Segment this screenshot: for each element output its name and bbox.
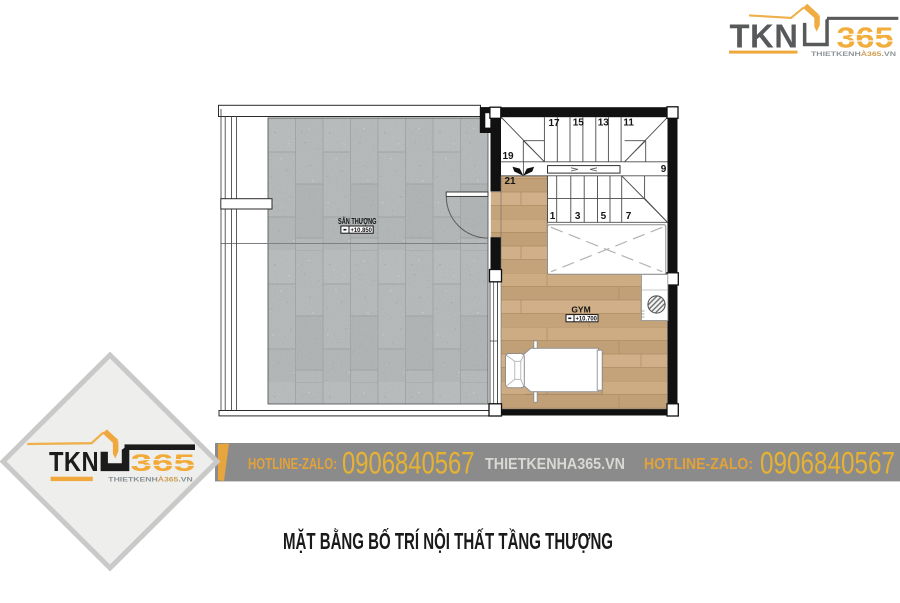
svg-text:GYM: GYM: [571, 305, 590, 315]
svg-text:365: 365: [837, 23, 894, 55]
svg-text:0906840567: 0906840567: [342, 445, 475, 481]
svg-text:5: 5: [601, 211, 607, 222]
svg-text:+10.700: +10.700: [575, 317, 597, 323]
svg-text:13: 13: [598, 118, 610, 129]
svg-text:365: 365: [131, 450, 196, 477]
svg-text:21: 21: [504, 176, 516, 187]
svg-text:TKN: TKN: [730, 18, 799, 55]
svg-text:THIETKENHÀ365.VN: THIETKENHÀ365.VN: [811, 49, 896, 58]
svg-text:HOTLINE-ZALO:: HOTLINE-ZALO:: [644, 456, 753, 473]
svg-text:1: 1: [550, 211, 556, 222]
svg-text:9: 9: [661, 164, 667, 175]
svg-text:SÂN THƯỢNG: SÂN THƯỢNG: [338, 215, 377, 226]
svg-text:TKN: TKN: [49, 446, 99, 477]
svg-text:MẶT BẰNG BỐ TRÍ NỘI THẤT TẦNG: MẶT BẰNG BỐ TRÍ NỘI THẤT TẦNG THƯỢNG: [283, 527, 613, 554]
svg-text:+10.850: +10.850: [350, 228, 372, 234]
svg-text:19: 19: [502, 151, 514, 162]
svg-text:THIETKENHA365.VN: THIETKENHA365.VN: [485, 456, 625, 473]
svg-text:17: 17: [548, 118, 560, 129]
svg-text:THIETKENHÀ365.VN: THIETKENHÀ365.VN: [108, 477, 193, 484]
svg-text:7: 7: [626, 211, 632, 222]
svg-text:15: 15: [573, 118, 585, 129]
svg-text:0906840567: 0906840567: [760, 445, 895, 481]
svg-text:11: 11: [623, 118, 634, 129]
svg-text:HOTLINE-ZALO:: HOTLINE-ZALO:: [248, 456, 337, 473]
svg-text:3: 3: [575, 211, 581, 222]
